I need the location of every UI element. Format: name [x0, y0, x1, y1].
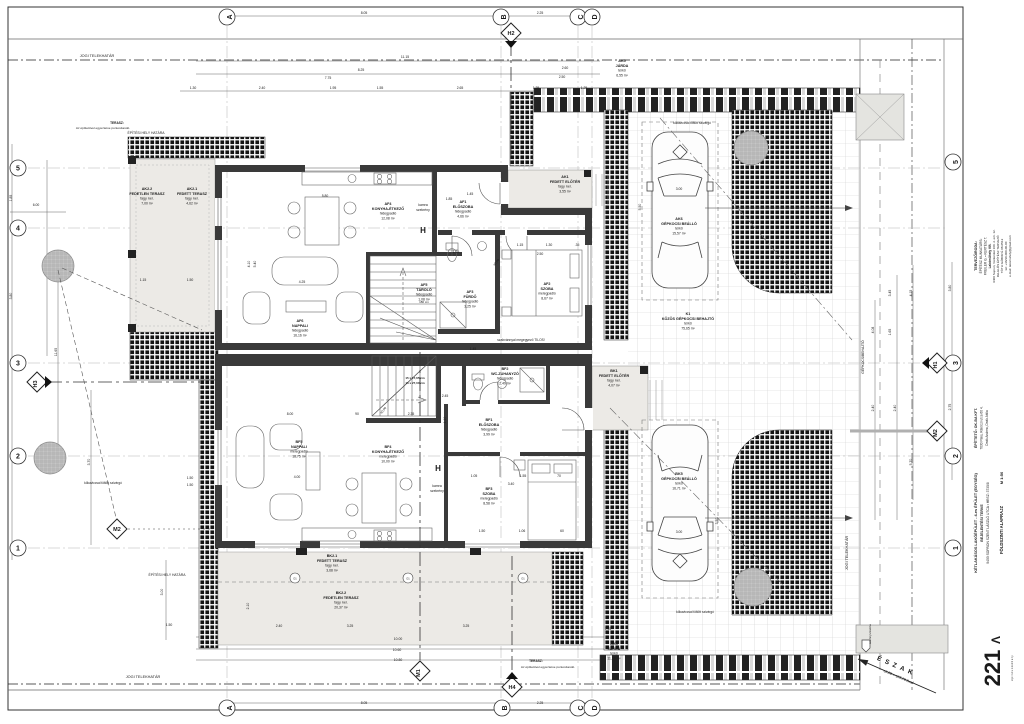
- annotation-label: ±0,00: [379, 406, 387, 415]
- room-floor: fagy. ker.: [607, 379, 621, 383]
- room-code: AK2.1: [187, 187, 197, 191]
- dimension-label: 1.95: [330, 86, 337, 90]
- room-name: FEDETLEN TERASZ: [129, 192, 165, 196]
- note-label: TERASZ:: [529, 659, 543, 663]
- section-marker-label: H1: [933, 361, 939, 368]
- room-area: 6,55 m²: [616, 73, 628, 77]
- room-area: 10,00 m²: [381, 459, 395, 463]
- dimension-label: 1.10: [443, 417, 447, 424]
- boundary-label: ÉPÍTÉSI HELY HATÁRA: [128, 130, 166, 135]
- room-floor: térkő: [675, 482, 683, 486]
- room-code: AF4: [385, 202, 393, 206]
- annotation-label: O1: [406, 577, 410, 581]
- section-marker-label: H2: [507, 31, 514, 37]
- dimension-label: 2.50: [559, 75, 566, 79]
- dimension-label: 7.75: [325, 76, 332, 80]
- dimension-label: 2.40: [259, 86, 266, 90]
- dimension-label: 90: [355, 412, 359, 416]
- room-name: JÁRDA: [608, 646, 621, 651]
- dimension-label: 2.65: [457, 86, 464, 90]
- boundary-label: JOGI TELEKHATÁR: [845, 536, 849, 571]
- title-text: Deák Andrea, Deák Attila: [985, 410, 989, 446]
- room-code: AK1: [561, 175, 568, 179]
- dimension-label: 3.25: [347, 624, 354, 628]
- dimension-label: 3.40: [508, 482, 515, 486]
- terrace-b: [218, 552, 552, 645]
- dimension-label: 3.80: [9, 293, 13, 300]
- room-code: AF2: [544, 282, 551, 286]
- room-code: BK2.1: [327, 554, 337, 558]
- grid-bubble-label: D: [592, 14, 599, 19]
- room-name: ELŐSZOBA: [479, 422, 500, 427]
- title-text: TERVEZŐIRODA:: [973, 241, 978, 271]
- dining-table-b: [362, 473, 396, 523]
- room-name: JÁRDA: [616, 63, 629, 68]
- room-code: K1: [686, 312, 691, 316]
- dimension-label: 1.30: [546, 243, 553, 247]
- room-code: BK5: [675, 472, 682, 476]
- dimension-label: 1.50: [187, 483, 194, 487]
- dimension-label: 1.50: [166, 623, 173, 627]
- room-name: ELŐSZOBA: [453, 204, 474, 209]
- dimension-label: 1.25: [581, 86, 588, 90]
- tree-icon: [734, 568, 772, 606]
- room-code: AK2.2: [142, 187, 152, 191]
- grid-bubble-label: 1: [16, 546, 20, 553]
- dimension-label: 10.80: [394, 658, 403, 662]
- title-text: 9400 SOPRON SZENT LÁSZLÓ UTCA • HRSZ: 37…: [985, 482, 990, 564]
- title-text: KÉTLAKÁSOS LAKÓÉPÜLET - 4-es ÉPÜLET (EGY…: [973, 472, 978, 572]
- annotation-label: szekrény: [416, 208, 430, 212]
- grid-bubble-label: 3: [16, 361, 20, 368]
- dimension-label: 1.85: [446, 197, 453, 201]
- annotation-label: O1: [521, 577, 525, 581]
- tree-icon: [42, 250, 74, 282]
- title-text: BEJELENTÉSI TERVE: [979, 504, 984, 542]
- dimension-label: 2.35: [408, 412, 415, 416]
- dimension-label: 8.25: [358, 68, 365, 72]
- room-code: AF3: [467, 290, 474, 294]
- grid-bubble-label: B: [502, 705, 509, 710]
- dimension-label: 1.35: [533, 86, 540, 90]
- dimension-label: 2.60: [562, 66, 569, 70]
- room-floor: melegpadló: [538, 292, 556, 296]
- room-code: AK6: [675, 217, 682, 221]
- room-name: FEDETT TERASZ: [177, 192, 208, 196]
- room-floor: hidegpadló: [292, 329, 309, 333]
- room-name: TÁROLÓ: [416, 287, 432, 292]
- dimension-label: 2.50: [537, 252, 544, 256]
- section-marker: [27, 372, 52, 392]
- room-floor: fagy. ker.: [140, 197, 154, 201]
- dimension-label: 3.70: [87, 459, 91, 466]
- grid-bubble-label: 4: [16, 226, 20, 233]
- room-area: 7,00 m²: [141, 201, 153, 205]
- boundary-label: ÉPÍTÉSI HELY HATÁRA: [149, 572, 187, 577]
- grid-bubble-label: 5: [16, 166, 20, 173]
- grid-bubble-label: 5: [953, 160, 960, 164]
- room-floor: térkő: [610, 652, 618, 656]
- room-area: 4,66 m²: [457, 214, 469, 218]
- room-floor: hidegpadló: [462, 300, 479, 304]
- title-text: FÖLDSZINTI ALAPRAJZ: [999, 506, 1004, 554]
- dimension-label: 11.15: [401, 55, 409, 59]
- annotation-label: kamra: [418, 203, 428, 207]
- grid-bubble-label: A: [227, 705, 234, 710]
- boundary-label: JOGI TELEKHATÁR: [80, 54, 115, 58]
- dimension-label: 4.10: [247, 261, 251, 268]
- title-text: é p í t é s z m ű h e l y: [1010, 655, 1014, 681]
- room-floor: melegpadló: [290, 450, 308, 454]
- dimension-label: 1.15: [140, 278, 147, 282]
- boundary-label: GÉPKOCSIBEHAJTÓ: [860, 340, 865, 374]
- room-floor: térkő: [684, 322, 692, 326]
- annotation-label: kamra: [432, 484, 442, 488]
- dimension-label: 3.80: [948, 285, 952, 292]
- sidewalk-top: [534, 88, 860, 112]
- dimension-label: 1.05: [471, 474, 478, 478]
- room-floor: fagy. ker.: [558, 185, 572, 189]
- room-floor: hidegpadló: [481, 428, 498, 432]
- dimension-label: 1.06: [519, 529, 526, 533]
- section-marker-label: M1: [416, 669, 422, 677]
- annotation-label: 15 x 17,65 cm: [405, 376, 425, 380]
- dimension-label: 1.55: [377, 86, 384, 90]
- dimension-label: 5.40: [253, 261, 257, 268]
- section-direction-icon: [505, 41, 517, 48]
- grid-bubble-label: 2: [16, 454, 20, 461]
- kitchen-counter-a: [302, 172, 432, 185]
- section-marker-label: M2: [933, 429, 939, 437]
- annotation-label: H: [420, 226, 426, 235]
- dimension-label: 1.55: [520, 474, 527, 478]
- room-code: AF1: [460, 200, 467, 204]
- room-name: KONYHA-ÉTKEZŐ: [372, 449, 404, 454]
- room-area: 20,37 m²: [334, 605, 348, 609]
- room-code: BF2: [502, 367, 509, 371]
- room-area: 3,99 m²: [483, 432, 495, 436]
- room-floor: fagy. ker.: [325, 564, 339, 568]
- dimension-label: 1.30: [190, 86, 197, 90]
- dimension-label: 1.15: [605, 627, 612, 631]
- note-label: szabvánnyal megegyező TILOS!: [497, 338, 545, 342]
- section-direction-icon: [45, 376, 52, 388]
- dimension-label: 3.00: [676, 187, 683, 191]
- room-name: SZOBA: [541, 287, 554, 291]
- dimension-label: 8.05: [361, 11, 368, 15]
- title-text: M 1:50: [999, 471, 1004, 484]
- room-code: AK5: [618, 59, 625, 63]
- sofa-b: [236, 426, 264, 488]
- annotation-label: O1: [293, 577, 297, 581]
- dimension-label: 2.10: [246, 603, 250, 610]
- dimension-label: 3.25: [463, 624, 470, 628]
- stairs: [370, 256, 436, 416]
- section-marker-label: H4: [508, 685, 516, 691]
- kitchen-counter-b: [302, 528, 432, 541]
- room-code: BK1: [610, 369, 617, 373]
- room-name: WC-ZUHANYZÓ: [491, 371, 519, 376]
- annotation-label: 16 x 27,00 cm: [405, 381, 425, 385]
- annotation-label: H: [435, 464, 441, 473]
- section-direction-icon: [922, 357, 929, 369]
- room-name: KONYHA-ÉTKEZŐ: [372, 206, 404, 211]
- dimension-label: 4.15: [909, 290, 913, 297]
- car-1: [647, 132, 713, 288]
- room-name: GÉPKOCSI BEÁLLÓ: [661, 476, 697, 481]
- grid-bubble-label: 3: [953, 361, 960, 365]
- dimension-label: 8.00: [287, 412, 294, 416]
- tree-icon: [34, 442, 66, 474]
- dimension-label: 1.25: [453, 250, 460, 254]
- room-area: 16,71 m²: [672, 486, 686, 490]
- porch-ak1: [508, 170, 592, 208]
- room-area: 8,58 m²: [483, 501, 495, 505]
- room-floor: fagy. ker.: [334, 601, 348, 605]
- room-area: 18,75 m²: [292, 454, 306, 458]
- title-text: e-mail: lakomuhely@gmail.com: [1008, 235, 1012, 277]
- room-name: KÖZÖS GÉPKOCSI BEHAJTÓ: [662, 316, 714, 321]
- dimension-label: 3.00: [676, 530, 683, 534]
- room-floor: hidegpadló: [455, 210, 472, 214]
- title-text: 221: [980, 650, 1005, 687]
- room-floor: térkő: [618, 69, 626, 73]
- note-label: Az építtetővel egyeztetve pontosítandó.: [76, 126, 130, 130]
- room-name: FEDETT ELŐTÉR: [599, 373, 630, 378]
- room-area: 8,67 m²: [541, 296, 553, 300]
- dimension-label: 4.00: [294, 475, 301, 479]
- bed-b: [528, 460, 576, 540]
- room-area: 4,62 m²: [186, 201, 198, 205]
- room-floor: térkő: [675, 227, 683, 231]
- dimension-label: 1.50: [187, 278, 194, 282]
- dimension-label: 1.50: [187, 476, 194, 480]
- boundary-label: JOGI TELEKHATÁR: [126, 675, 161, 679]
- room-name: NAPPALI: [292, 324, 308, 328]
- drawing-sheet: ÉSZAK ±0,00 = 105,70 Bszf AK2.2FEDETLEN …: [0, 0, 1024, 724]
- grid-bubble-label: D: [592, 705, 599, 710]
- room-area: 75,65 m²: [681, 326, 695, 330]
- dimension-label: 1.45: [470, 347, 477, 351]
- room-area: 16,16 m²: [293, 333, 307, 337]
- room-name: FÜRDŐ: [463, 294, 476, 299]
- dimension-label: 8.05: [361, 701, 368, 705]
- title-text: ÉPÍTÉSZ MUNKATÁRS:: [978, 238, 983, 273]
- dimension-label: 3.00: [160, 589, 164, 596]
- room-name: SZOBA: [483, 492, 496, 496]
- note-label: kőkaviccsal töltött szivárgó: [676, 610, 714, 614]
- grid-bubble-label: 2: [953, 454, 960, 458]
- grid-bubble-label: B: [501, 14, 508, 19]
- dimension-label: 1.85: [9, 195, 13, 202]
- room-code: AF5: [421, 283, 428, 287]
- dimension-label: 10.60: [393, 648, 402, 652]
- north-arrow: ÉSZAK ±0,00 = 105,70 Bszf: [858, 653, 936, 693]
- dimension-label: 6.00: [33, 203, 40, 207]
- grid-bubble-label: A: [227, 14, 234, 19]
- room-floor: hidegpadló: [497, 377, 514, 381]
- room-code: BK2.2: [336, 591, 346, 595]
- dimension-label: 60: [560, 529, 564, 533]
- room-area: 2,49 m²: [499, 381, 511, 385]
- room-area: 15,57 m²: [672, 231, 686, 235]
- dimension-label: 2.75: [948, 404, 952, 411]
- note-label: kőkaviccsal töltött szivárgó: [84, 481, 122, 485]
- dimension-label: 5.50: [638, 204, 642, 211]
- tree-icon: [734, 131, 768, 165]
- room-name: FEDETLEN TERASZ: [323, 596, 359, 600]
- room-name: NAPPALI: [291, 445, 307, 449]
- title-text: ÉPÍTTETŐ: OK-BA KFT.: [973, 408, 978, 448]
- room-name: GÉPKOCSI BEÁLLÓ: [661, 221, 697, 226]
- dimension-label: 4.08: [871, 327, 875, 334]
- title-text: Λ: [989, 636, 1003, 644]
- room-floor: hidegpadló: [416, 293, 433, 297]
- sidewalk-bottom: [600, 655, 860, 680]
- dimension-label: 1.65: [888, 329, 892, 336]
- section-marker-label: M2: [113, 527, 121, 533]
- room-name: FEDETT TERASZ: [317, 559, 348, 563]
- note-label: TERASZ:: [110, 121, 124, 125]
- room-floor: melegpadló: [480, 497, 498, 501]
- room-area: 3,55 m²: [559, 189, 571, 193]
- section-marker-label: H3: [33, 380, 39, 387]
- dimension-label: 2.40: [276, 624, 283, 628]
- dimension-label: 10.00: [394, 637, 403, 641]
- dining-table-a: [305, 197, 339, 245]
- dimension-label: 4.25: [299, 280, 306, 284]
- room-area: 11,10 m²: [607, 656, 621, 660]
- room-area: 12,08 m²: [381, 216, 395, 220]
- terrace-a: [130, 159, 215, 332]
- dimension-label: 3.50: [715, 518, 719, 525]
- room-area: 4,07 m²: [608, 383, 620, 387]
- room-area: 3,25 m²: [464, 304, 476, 308]
- dimension-label: 11.65: [54, 348, 58, 356]
- room-floor: hidegpadló: [380, 212, 397, 216]
- car-2: [647, 425, 713, 581]
- section-direction-icon: [506, 672, 518, 679]
- dimension-label: 1.50: [479, 529, 486, 533]
- note-label: szennyvízakna: [868, 624, 872, 644]
- dimension-label: 2.25: [537, 11, 544, 15]
- dimension-label: 70: [557, 474, 561, 478]
- grid-bubble-label: 1: [953, 546, 960, 550]
- dimension-label: 3.45: [888, 290, 892, 297]
- dimension-label: 2.45: [442, 394, 449, 398]
- dimension-label: .35: [575, 243, 580, 247]
- room-code: BF3: [486, 487, 493, 491]
- annotation-label: 180 cm: [419, 300, 429, 304]
- room-area: 3,68 m²: [326, 568, 338, 572]
- note-label: kőkaviccsal töltött szivárgó: [673, 121, 711, 125]
- room-code: BF1: [486, 418, 493, 422]
- room-floor: fagy. ker.: [185, 197, 199, 201]
- title-text: 7030 Paks, Rákóczi utca 60 4.: [980, 406, 984, 449]
- room-code: BK4: [610, 642, 618, 646]
- room-code: BF4: [385, 445, 393, 449]
- room-code: AF6: [297, 319, 304, 323]
- room-code: BF5: [296, 440, 303, 444]
- dimension-label: 2.40: [871, 405, 875, 412]
- floor-plan: ÉSZAK ±0,00 = 105,70 Bszf AK2.2FEDETLEN …: [0, 0, 1024, 724]
- room-name: FEDETT ELŐTÉR: [550, 179, 581, 184]
- annotation-label: szekrény: [430, 489, 444, 493]
- title-text: FREILER G. • KERTÉSZ T.: [983, 237, 988, 276]
- dimension-label: 5.70: [909, 459, 913, 466]
- note-label: Az építtetővel egyeztetve pontosítandó.: [521, 665, 575, 669]
- dimension-label: 5.80: [322, 194, 329, 198]
- dimension-label: 2.40: [893, 405, 897, 412]
- room-floor: melegpadló: [379, 455, 397, 459]
- dimension-label: 1.15: [517, 243, 524, 247]
- dimension-label: 1.45: [467, 192, 474, 196]
- dimension-label: 2.25: [537, 701, 544, 705]
